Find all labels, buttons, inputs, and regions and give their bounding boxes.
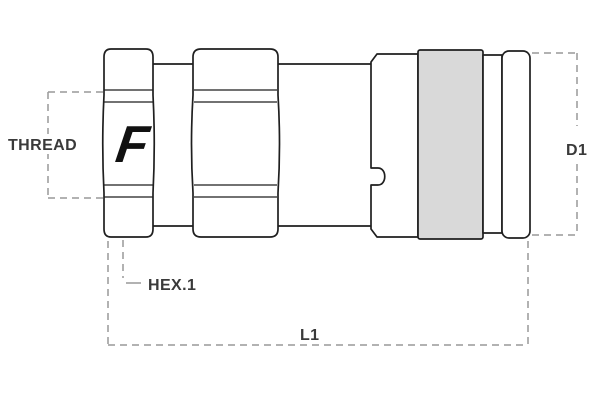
l1-label: L1: [300, 327, 319, 344]
thread-label: THREAD: [8, 137, 77, 154]
nose-end-cap: [502, 51, 530, 238]
hex1-label: HEX.1: [148, 277, 196, 294]
neck-cylinder-1: [153, 64, 193, 226]
neck-cylinder-2: [278, 64, 371, 226]
body-section-outline: [371, 54, 418, 237]
coupling-diagram: F THREAD HEX.1 D1 L1: [0, 0, 600, 400]
d1-label: D1: [566, 142, 587, 159]
coupling-body: F: [103, 49, 530, 239]
ring-section: [483, 55, 502, 233]
hex-nut-2-outline: [192, 49, 280, 237]
release-sleeve: [418, 50, 483, 239]
drawing-canvas: F THREAD HEX.1 D1 L1: [0, 0, 600, 400]
